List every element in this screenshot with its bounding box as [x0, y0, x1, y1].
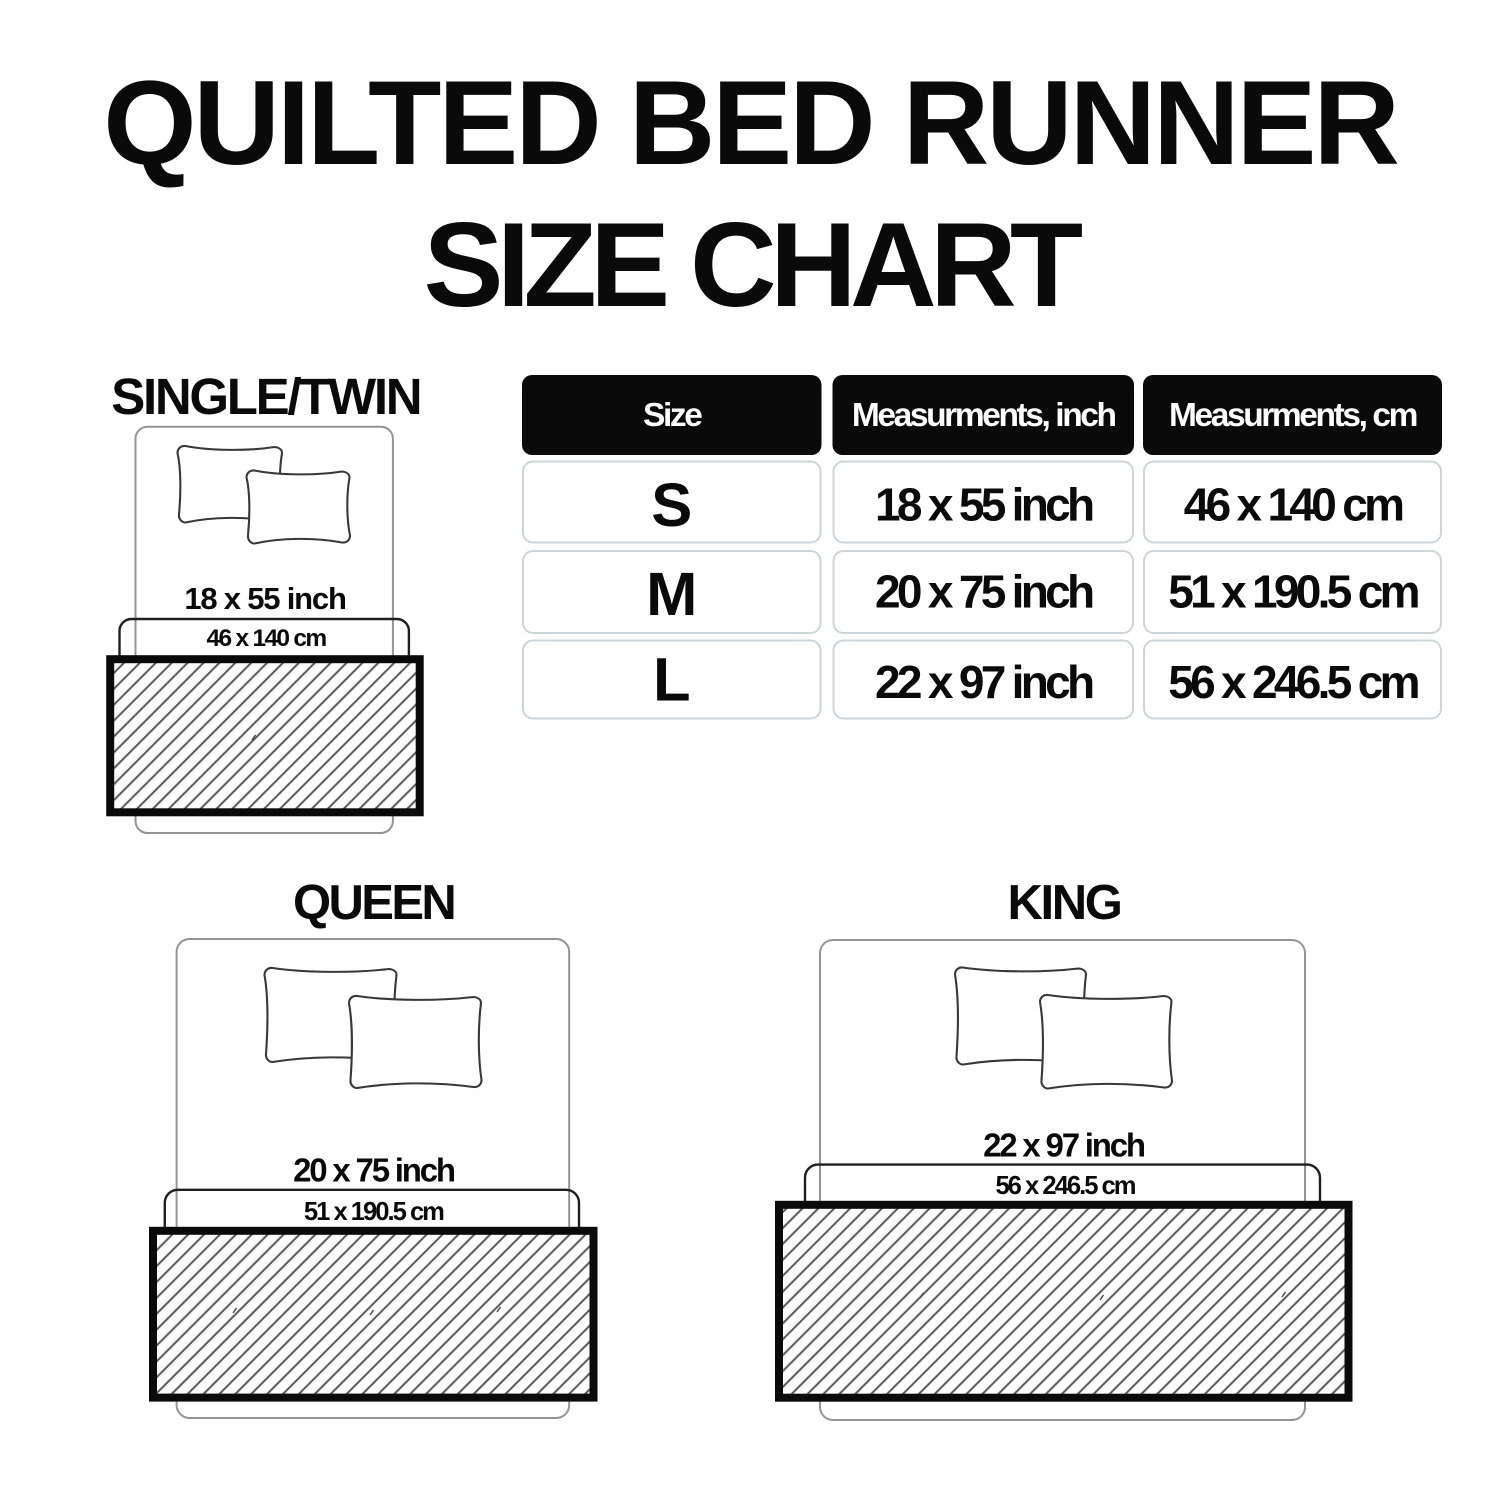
- svg-text:M: M: [646, 560, 697, 629]
- svg-text:S: S: [651, 471, 692, 540]
- svg-text:18 x 55 inch: 18 x 55 inch: [875, 478, 1093, 530]
- svg-text:QUEEN: QUEEN: [293, 876, 454, 930]
- svg-text:KING: KING: [1008, 876, 1121, 930]
- svg-text:20 x 75 inch: 20 x 75 inch: [293, 1152, 455, 1189]
- svg-text:51 x 190.5 cm: 51 x 190.5 cm: [304, 1198, 444, 1226]
- svg-text:L: L: [653, 646, 691, 715]
- svg-text:SIZE CHART: SIZE CHART: [424, 198, 1083, 332]
- svg-text:56 x 246.5 cm: 56 x 246.5 cm: [1168, 656, 1418, 708]
- svg-text:SINGLE/TWIN: SINGLE/TWIN: [111, 368, 420, 425]
- svg-text:51 x 190.5 cm: 51 x 190.5 cm: [1168, 566, 1418, 618]
- svg-text:46 x 140 cm: 46 x 140 cm: [207, 625, 327, 652]
- svg-text:Size: Size: [643, 397, 702, 434]
- svg-text:Measurments, inch: Measurments, inch: [852, 397, 1116, 434]
- svg-text:56 x 246.5 cm: 56 x 246.5 cm: [995, 1172, 1135, 1200]
- svg-text:22 x 97 inch: 22 x 97 inch: [875, 656, 1093, 708]
- svg-text:22 x 97 inch: 22 x 97 inch: [983, 1127, 1145, 1164]
- svg-text:Measurments, cm: Measurments, cm: [1169, 397, 1417, 434]
- svg-text:46 x 140 cm: 46 x 140 cm: [1184, 478, 1403, 530]
- svg-text:18 x 55 inch: 18 x 55 inch: [184, 581, 346, 616]
- svg-text:QUILTED BED RUNNER: QUILTED BED RUNNER: [103, 56, 1398, 190]
- svg-text:20 x 75 inch: 20 x 75 inch: [875, 566, 1093, 618]
